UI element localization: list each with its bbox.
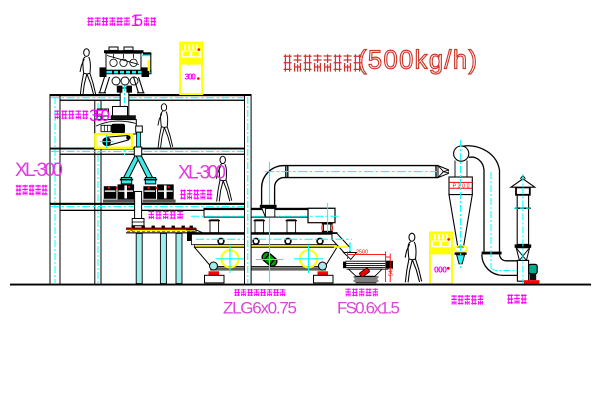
svg-text:XL-300: XL-300 (15, 160, 63, 181)
svg-text:ZLG6x0.75: ZLG6x0.75 (223, 299, 297, 318)
svg-text:1.5: 1.5 (131, 12, 144, 30)
svg-text:2500: 2500 (356, 250, 368, 256)
svg-text:300: 300 (185, 72, 197, 82)
svg-text:540: 540 (388, 267, 394, 276)
svg-text:350: 350 (89, 106, 110, 125)
svg-text:000: 000 (434, 265, 447, 275)
svg-text:XL-300: XL-300 (178, 163, 226, 184)
svg-text:(500kg/h): (500kg/h) (358, 47, 477, 75)
svg-text:FS0.6x1.5: FS0.6x1.5 (337, 299, 400, 318)
